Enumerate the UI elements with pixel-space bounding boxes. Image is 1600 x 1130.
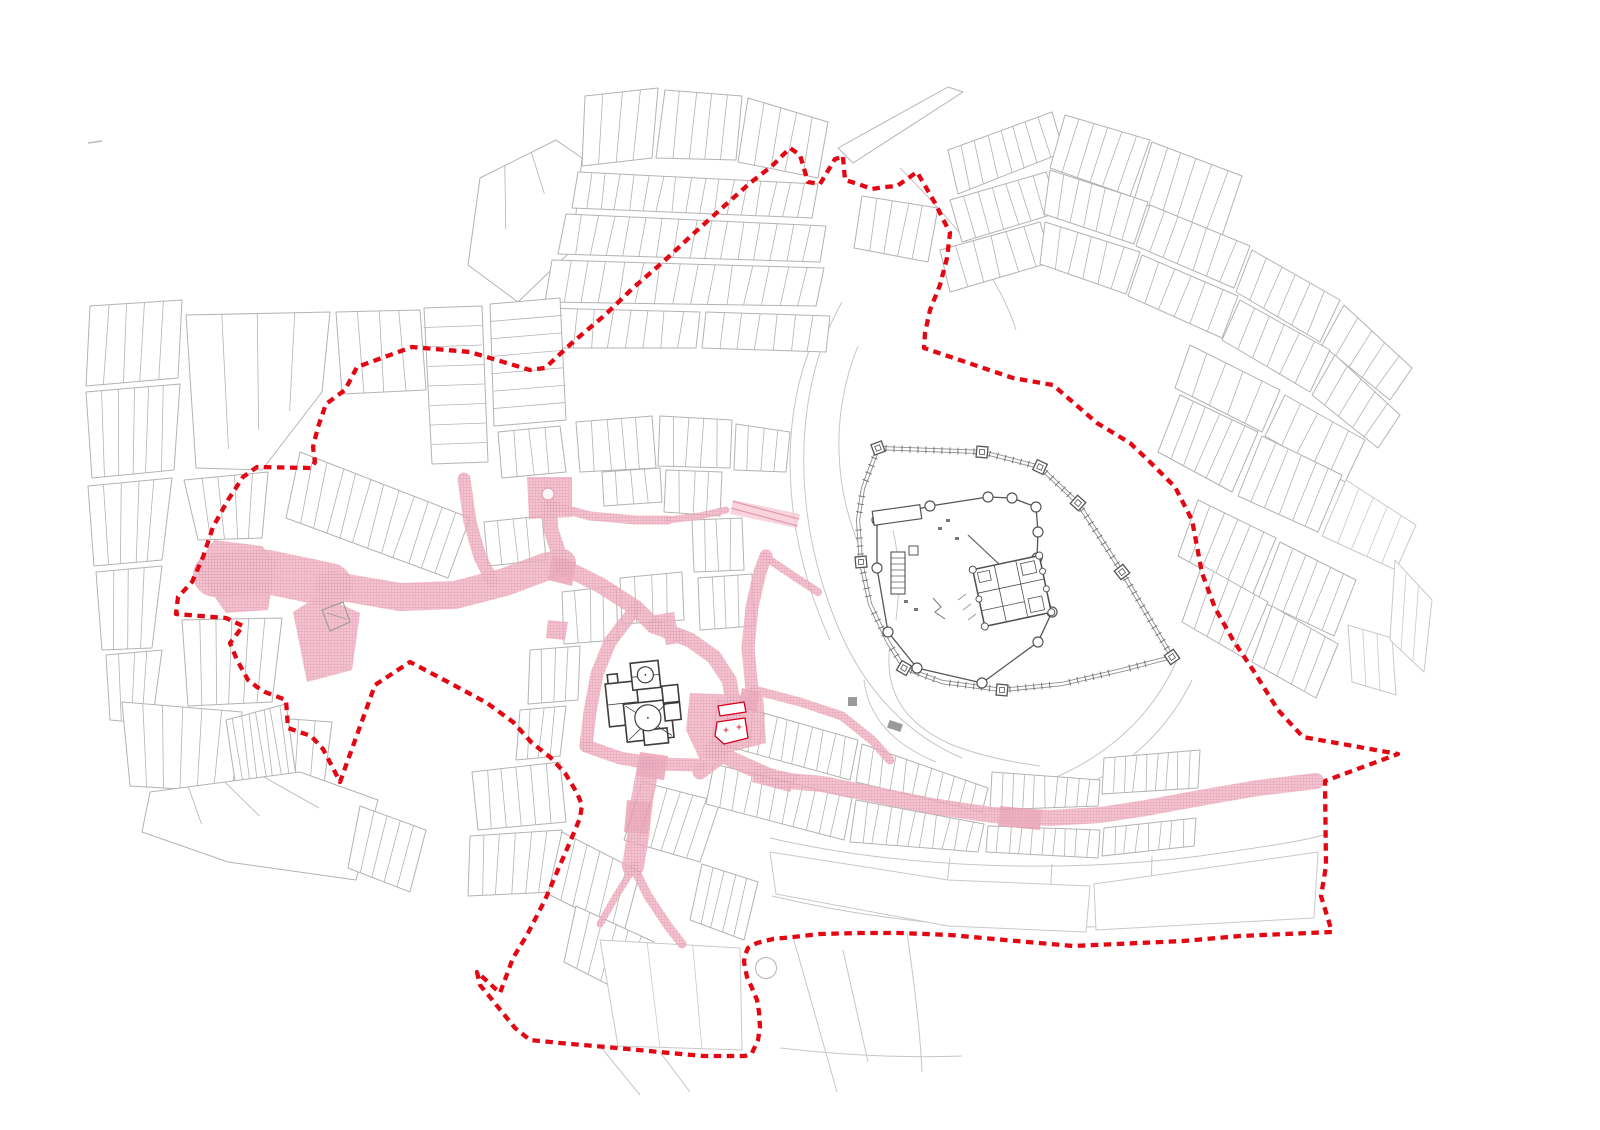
red-market-buildings: [715, 702, 748, 744]
castle-complex: [855, 441, 1180, 696]
civic-complex: [603, 659, 683, 749]
urban-plan-map: [0, 0, 1600, 1130]
map-canvas: [0, 0, 1600, 1130]
